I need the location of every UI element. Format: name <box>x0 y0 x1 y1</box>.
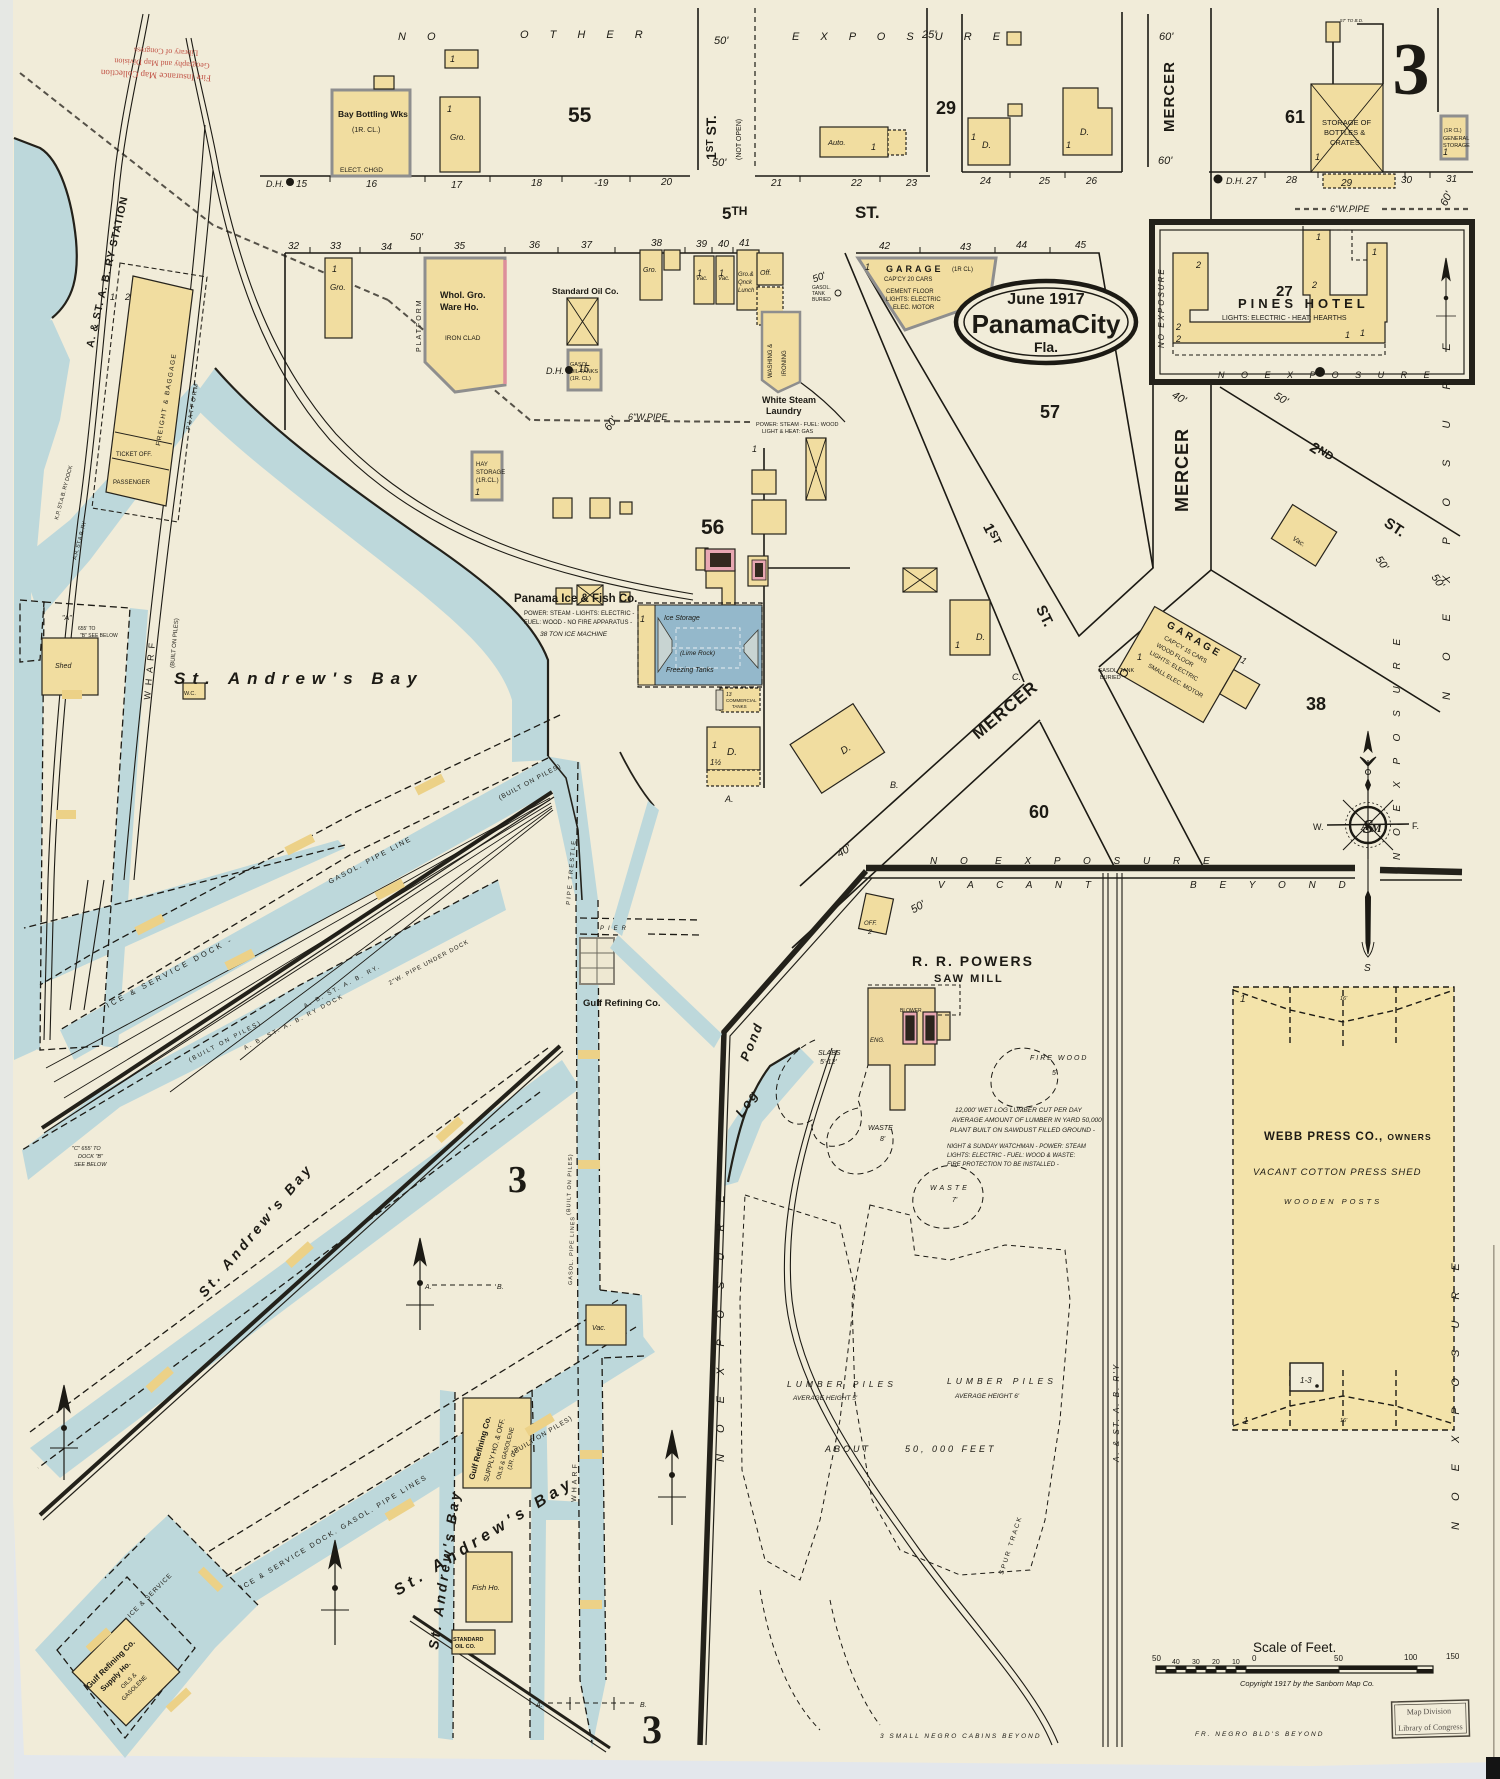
svg-text:Fish Ho.: Fish Ho. <box>472 1583 500 1592</box>
svg-text:0: 0 <box>1252 1654 1257 1663</box>
svg-text:WASTE: WASTE <box>930 1185 970 1192</box>
svg-text:IRONING: IRONING <box>782 350 788 376</box>
svg-text:1: 1 <box>1372 247 1377 257</box>
svg-text:SLABS: SLABS <box>818 1050 841 1057</box>
svg-text:B.: B. <box>640 1702 647 1709</box>
svg-text:SAW MILL: SAW MILL <box>934 973 1004 985</box>
svg-text:(NOT OPEN): (NOT OPEN) <box>736 119 743 160</box>
svg-text:60': 60' <box>1158 155 1173 167</box>
svg-text:Scale of Feet.: Scale of Feet. <box>1253 1640 1336 1655</box>
svg-text:St. Andrew's Bay: St. Andrew's Bay <box>174 669 424 688</box>
svg-text:Copyright 1917 by the Sanborn: Copyright 1917 by the Sanborn Map Co. <box>1240 1679 1374 1688</box>
svg-text:LIGHTS: ELECTRIC - FUEL: WOOD: LIGHTS: ELECTRIC - FUEL: WOOD & WASTE: <box>947 1153 1076 1159</box>
svg-text:MERCER: MERCER <box>1161 61 1178 132</box>
svg-text:STORAGE OF: STORAGE OF <box>1322 118 1371 127</box>
svg-text:FIRE PROTECTION TO BE INSTALLE: FIRE PROTECTION TO BE INSTALLED - <box>947 1162 1059 1168</box>
svg-text:Gro.: Gro. <box>330 283 346 292</box>
svg-text:50': 50' <box>714 35 729 47</box>
svg-text:N O E X P O S U R E: N O E X P O S U R E <box>1392 632 1403 860</box>
svg-text:A. & ST. A. B. R'Y: A. & ST. A. B. R'Y <box>1112 1363 1121 1463</box>
svg-text:2: 2 <box>124 292 130 302</box>
svg-text:3: 3 <box>642 1707 662 1752</box>
svg-text:18: 18 <box>531 178 543 189</box>
svg-text:A: A <box>1360 819 1369 833</box>
svg-text:W.C.: W.C. <box>184 691 196 697</box>
svg-text:D.: D. <box>727 747 737 758</box>
svg-text:AVERAGE AMOUNT OF LUMBER IN YA: AVERAGE AMOUNT OF LUMBER IN YARD 50,000 <box>951 1117 1102 1124</box>
svg-text:(1R. CL.): (1R. CL.) <box>352 127 380 134</box>
svg-text:28: 28 <box>1285 175 1298 186</box>
svg-text:38: 38 <box>1306 694 1326 714</box>
svg-text:BOTTLES &: BOTTLES & <box>1324 128 1365 137</box>
svg-text:1: 1 <box>110 292 115 302</box>
svg-text:1: 1 <box>1316 232 1321 242</box>
svg-text:N O E X P O S U R E: N O E X P O S U R E <box>715 1186 727 1462</box>
svg-text:3: 3 <box>1393 29 1430 111</box>
svg-text:GASOL. TANK: GASOL. TANK <box>1098 668 1135 674</box>
svg-text:1: 1 <box>1315 152 1320 162</box>
svg-text:C.: C. <box>1012 672 1021 682</box>
svg-text:2: 2 <box>1175 322 1181 332</box>
svg-text:Gulf Refining Co.: Gulf Refining Co. <box>583 998 661 1009</box>
svg-text:E X P O S U R E: E X P O S U R E <box>995 856 1220 867</box>
svg-text:N O: N O <box>930 856 978 867</box>
svg-text:1: 1 <box>450 54 455 64</box>
svg-text:GENERAL: GENERAL <box>1443 136 1469 142</box>
svg-text:21: 21 <box>770 178 782 189</box>
svg-text:AVERAGE HEIGHT 6': AVERAGE HEIGHT 6' <box>954 1393 1020 1400</box>
svg-text:Ware Ho.: Ware Ho. <box>440 302 479 312</box>
svg-text:Standard Oil Co.: Standard Oil Co. <box>552 286 619 296</box>
svg-text:6"W.PIPE: 6"W.PIPE <box>628 412 668 422</box>
svg-text:HAY: HAY <box>476 462 488 468</box>
svg-text:NO EXPOSURE: NO EXPOSURE <box>1157 267 1166 348</box>
svg-text:ELECT. CHGD: ELECT. CHGD <box>340 167 383 174</box>
svg-text:VACANT COTTON PRESS SHED: VACANT COTTON PRESS SHED <box>1253 1167 1421 1178</box>
svg-text:LUMBER PILES: LUMBER PILES <box>787 1379 897 1389</box>
svg-text:E X P O S U R E: E X P O S U R E <box>792 31 1009 43</box>
svg-text:50: 50 <box>1334 1654 1343 1663</box>
svg-text:PINES HOTEL: PINES HOTEL <box>1238 296 1369 311</box>
svg-text:26: 26 <box>1085 176 1098 187</box>
svg-text:60': 60' <box>1159 31 1174 43</box>
svg-text:TANKS: TANKS <box>732 704 747 709</box>
svg-text:CEMENT FLOOR: CEMENT FLOOR <box>886 289 934 295</box>
svg-text:1: 1 <box>1345 330 1350 340</box>
svg-text:30: 30 <box>1401 175 1413 186</box>
svg-text:1: 1 <box>1443 147 1448 157</box>
svg-text:45: 45 <box>1075 240 1087 251</box>
svg-text:1: 1 <box>475 487 480 497</box>
svg-text:PASSENGER: PASSENGER <box>113 480 151 486</box>
svg-text:R. R. POWERS: R. R. POWERS <box>912 953 1034 969</box>
svg-text:STORAGE: STORAGE <box>476 470 505 476</box>
svg-text:N O E X P O S U R E: N O E X P O S U R E <box>1441 329 1453 700</box>
svg-text:Shed: Shed <box>55 663 72 670</box>
svg-text:6"W.PIPE: 6"W.PIPE <box>1330 204 1370 214</box>
svg-text:ENG.: ENG. <box>870 1038 885 1044</box>
svg-text:34: 34 <box>381 242 393 253</box>
svg-text:38 TON ICE MACHINE: 38 TON ICE MACHINE <box>540 631 608 638</box>
svg-text:1: 1 <box>1240 994 1246 1005</box>
svg-text:12,000' WET LOG LUMBER CUT PER: 12,000' WET LOG LUMBER CUT PER DAY <box>955 1107 1082 1114</box>
svg-text:BLOWER: BLOWER <box>900 1008 922 1014</box>
svg-text:S: S <box>1364 963 1371 974</box>
svg-text:22: 22 <box>850 178 863 189</box>
svg-text:1: 1 <box>971 132 976 142</box>
svg-text:LIGHTS: ELECTRIC: LIGHTS: ELECTRIC <box>886 297 941 303</box>
svg-text:White Steam: White Steam <box>762 395 816 405</box>
svg-text:1: 1 <box>719 268 724 278</box>
svg-text:Ice Storage: Ice Storage <box>664 615 700 622</box>
svg-text:WASHING &: WASHING & <box>768 344 774 378</box>
svg-text:B.: B. <box>497 1284 504 1291</box>
svg-text:PIER: PIER <box>600 926 630 932</box>
svg-text:ST.: ST. <box>855 203 880 222</box>
svg-text:M: M <box>1370 821 1382 835</box>
svg-text:37: 37 <box>581 240 593 251</box>
svg-text:Qnck: Qnck <box>738 280 753 286</box>
svg-text:Vac.: Vac. <box>592 1325 606 1332</box>
svg-text:DOCK "B": DOCK "B" <box>78 1154 104 1160</box>
svg-text:MERCER: MERCER <box>1172 428 1192 512</box>
svg-text:CAP'CY 20 CARS: CAP'CY 20 CARS <box>884 277 932 283</box>
svg-text:(Lime Rock): (Lime Rock) <box>680 650 715 657</box>
svg-text:27: 27 <box>1245 176 1258 187</box>
svg-text:GARAGE: GARAGE <box>886 264 944 274</box>
svg-text:3: 3 <box>508 1159 527 1201</box>
svg-text:1: 1 <box>871 142 876 152</box>
svg-text:WHARF: WHARF <box>571 1461 579 1502</box>
svg-text:Freezing Tanks: Freezing Tanks <box>666 667 714 674</box>
svg-text:30: 30 <box>1192 1659 1200 1666</box>
svg-text:41: 41 <box>739 238 750 249</box>
svg-text:61: 61 <box>1285 107 1305 127</box>
svg-text:W.: W. <box>1313 822 1324 832</box>
svg-text:"A": "A" <box>62 615 72 622</box>
svg-text:N O: N O <box>398 31 445 43</box>
svg-text:1: 1 <box>1066 140 1071 150</box>
svg-text:1-3: 1-3 <box>1300 1376 1312 1385</box>
svg-text:Whol. Gro.: Whol. Gro. <box>440 290 486 300</box>
svg-text:50: 50 <box>1152 1654 1161 1663</box>
svg-text:Laundry: Laundry <box>766 406 802 416</box>
svg-text:D.H.: D.H. <box>1226 176 1244 186</box>
svg-text:20: 20 <box>660 177 673 188</box>
svg-text:IRON CLAD: IRON CLAD <box>445 335 481 342</box>
svg-text:B E Y O N D: B E Y O N D <box>1190 880 1356 891</box>
svg-text:TICKET OFF.: TICKET OFF. <box>116 452 152 458</box>
svg-text:WOODEN POSTS: WOODEN POSTS <box>1284 1197 1382 1206</box>
svg-text:1: 1 <box>447 104 452 114</box>
svg-text:56: 56 <box>701 516 724 539</box>
svg-text:Gro.: Gro. <box>450 133 466 142</box>
svg-text:V A C A N T: V A C A N T <box>938 880 1101 891</box>
svg-text:29: 29 <box>1340 178 1353 189</box>
svg-text:WEBB PRESS CO., OWNERS: WEBB PRESS CO., OWNERS <box>1264 1131 1432 1143</box>
svg-text:150: 150 <box>1446 1652 1460 1661</box>
svg-text:1: 1 <box>332 264 337 274</box>
svg-text:1½: 1½ <box>710 758 721 767</box>
svg-text:32: 32 <box>288 241 300 252</box>
svg-text:16: 16 <box>366 179 378 190</box>
svg-text:24: 24 <box>979 176 992 187</box>
svg-text:36: 36 <box>529 240 541 251</box>
svg-text:B.: B. <box>890 780 899 790</box>
svg-text:1: 1 <box>1360 328 1365 338</box>
svg-text:1: 1 <box>1137 652 1142 662</box>
svg-text:23: 23 <box>905 178 918 189</box>
svg-text:GASOL.: GASOL. <box>570 362 591 368</box>
svg-text:29: 29 <box>936 98 956 118</box>
svg-text:2: 2 <box>1175 334 1181 344</box>
svg-text:1: 1 <box>1243 1416 1249 1427</box>
svg-text:ABOUT: ABOUT <box>824 1444 871 1454</box>
svg-text:F.: F. <box>1412 821 1419 831</box>
svg-text:D.: D. <box>982 140 991 150</box>
svg-text:5'-12': 5'-12' <box>820 1059 837 1066</box>
svg-text:FIRE WOOD: FIRE WOOD <box>1030 1055 1088 1062</box>
svg-text:100: 100 <box>1404 1653 1418 1662</box>
svg-text:O T H E R: O T H E R <box>520 29 652 41</box>
svg-text:Panama Ice & Fish Co.: Panama Ice & Fish Co. <box>514 593 637 605</box>
svg-text:D.H.: D.H. <box>546 366 564 376</box>
svg-text:33: 33 <box>330 241 342 252</box>
svg-text:Map Division: Map Division <box>1407 1706 1451 1716</box>
svg-text:1: 1 <box>697 268 702 278</box>
svg-text:N O E X P O S U R E: N O E X P O S U R E <box>1450 1254 1462 1530</box>
svg-text:OIL TANKS: OIL TANKS <box>570 369 598 375</box>
svg-text:(1R CL): (1R CL) <box>1444 128 1462 134</box>
svg-text:FUEL: WOOD - NO FIRE APPARATUS: FUEL: WOOD - NO FIRE APPARATUS - <box>524 620 632 626</box>
svg-text:3 SMALL NEGRO CABINS BEYON: 3 SMALL NEGRO CABINS BEYOND <box>880 1733 1042 1740</box>
svg-text:50, 000 FEET: 50, 000 FEET <box>905 1444 997 1454</box>
svg-text:D.: D. <box>1080 127 1089 137</box>
svg-text:PLATFORM: PLATFORM <box>416 298 423 352</box>
svg-text:LIGHTS: ELECTRIC - HEAT: HEART: LIGHTS: ELECTRIC - HEAT: HEARTHS <box>1222 315 1347 322</box>
svg-text:Lunch: Lunch <box>738 288 755 294</box>
svg-text:1ST ST.: 1ST ST. <box>703 115 719 160</box>
svg-text:25: 25 <box>1038 176 1051 187</box>
svg-text:LUMBER PILES: LUMBER PILES <box>947 1376 1057 1386</box>
svg-text:40: 40 <box>718 239 730 250</box>
svg-text:Fla.: Fla. <box>1034 339 1058 355</box>
svg-text:2: 2 <box>867 929 872 936</box>
svg-text:25': 25' <box>921 29 937 41</box>
svg-text:60: 60 <box>1029 802 1049 822</box>
svg-text:50': 50' <box>712 157 727 169</box>
svg-text:Gro.: Gro. <box>643 267 657 274</box>
svg-text:"C" 655' TO: "C" 655' TO <box>72 1146 101 1152</box>
svg-text:50': 50' <box>410 232 424 243</box>
svg-text:AVERAGE HEIGHT 5': AVERAGE HEIGHT 5' <box>792 1395 858 1402</box>
svg-text:N O E X P O S U R E: N O E X P O S U R E <box>1218 370 1437 380</box>
svg-text:57: 57 <box>1040 402 1060 422</box>
svg-text:Off.: Off. <box>760 270 771 277</box>
svg-text:D.: D. <box>976 632 985 642</box>
svg-text:OFF.: OFF. <box>864 921 877 927</box>
svg-text:BURIED: BURIED <box>1100 675 1121 681</box>
svg-text:39: 39 <box>696 239 708 250</box>
svg-text:15: 15 <box>296 179 308 190</box>
svg-text:40: 40 <box>1172 1659 1180 1666</box>
svg-text:8': 8' <box>880 1136 886 1143</box>
svg-text:38: 38 <box>651 238 663 249</box>
svg-text:655' TO: 655' TO <box>78 626 96 632</box>
svg-text:44: 44 <box>1016 240 1028 251</box>
svg-text:Bay Bottling Wks: Bay Bottling Wks <box>338 109 408 119</box>
svg-text:31: 31 <box>1446 174 1457 185</box>
svg-text:Library of Congress: Library of Congress <box>1398 1722 1463 1733</box>
svg-text:Auto.: Auto. <box>827 138 846 147</box>
svg-text:-19: -19 <box>594 178 609 189</box>
svg-text:16': 16' <box>1340 1418 1348 1424</box>
svg-text:WASTE: WASTE <box>868 1125 893 1132</box>
svg-text:(1R CL): (1R CL) <box>952 267 973 273</box>
svg-text:BURIED: BURIED <box>812 297 831 303</box>
svg-text:PanamaCity: PanamaCity <box>972 309 1121 339</box>
svg-text:1: 1 <box>955 640 960 650</box>
svg-text:7': 7' <box>952 1197 958 1204</box>
svg-text:CRATES: CRATES <box>1330 138 1360 147</box>
svg-text:16': 16' <box>1340 996 1348 1002</box>
svg-text:"B" SEE BELOW: "B" SEE BELOW <box>80 633 118 639</box>
svg-text:COMMERCIAL: COMMERCIAL <box>726 698 757 703</box>
svg-text:10: 10 <box>1232 1659 1240 1666</box>
svg-text:STANDARD: STANDARD <box>453 1637 483 1643</box>
svg-text:A.: A. <box>424 1284 432 1291</box>
svg-text:57' TO B.D.: 57' TO B.D. <box>1340 18 1363 23</box>
svg-text:OIL CO.: OIL CO. <box>455 1644 476 1650</box>
svg-text:FR. NEGRO BLD'S BEYOND: FR. NEGRO BLD'S BEYOND <box>1195 1731 1324 1738</box>
svg-text:June 1917: June 1917 <box>1007 291 1084 308</box>
svg-text:(1R. CL): (1R. CL) <box>570 376 591 382</box>
svg-text:POWER: STEAM - FUEL: WOOD: POWER: STEAM - FUEL: WOOD <box>756 422 839 428</box>
svg-text:1: 1 <box>712 740 717 750</box>
svg-text:D.H.: D.H. <box>266 179 284 189</box>
svg-text:PLANT BUILT ON SAWDUST FILLED: PLANT BUILT ON SAWDUST FILLED GROUND - <box>950 1127 1096 1134</box>
svg-text:2: 2 <box>1311 280 1317 290</box>
svg-text:(1R.CL.): (1R.CL.) <box>476 478 499 484</box>
svg-text:A.: A. <box>535 1702 543 1709</box>
svg-text:LIGHT & HEAT: GAS: LIGHT & HEAT: GAS <box>762 429 813 435</box>
svg-text:2: 2 <box>1195 260 1201 270</box>
svg-text:SEE BELOW: SEE BELOW <box>74 1162 107 1168</box>
svg-text:POWER: STEAM - LIGHTS: ELECTRI: POWER: STEAM - LIGHTS: ELECTRIC - <box>524 611 634 617</box>
svg-text:A.: A. <box>724 794 734 804</box>
svg-text:1: 1 <box>752 444 757 454</box>
svg-text:1: 1 <box>640 614 645 624</box>
svg-text:35: 35 <box>454 241 466 252</box>
svg-text:20: 20 <box>1212 1659 1220 1666</box>
svg-text:ELEC. MOTOR: ELEC. MOTOR <box>893 305 935 311</box>
svg-text:Gro.&: Gro.& <box>738 272 754 278</box>
svg-text:17: 17 <box>451 180 463 191</box>
svg-text:55: 55 <box>568 104 592 127</box>
svg-text:NIGHT & SUNDAY WATCHMAN - POWE: NIGHT & SUNDAY WATCHMAN - POWER: STEAM <box>947 1144 1086 1150</box>
svg-text:42: 42 <box>879 241 891 252</box>
svg-text:1: 1 <box>865 262 870 272</box>
svg-text:43: 43 <box>960 242 972 253</box>
